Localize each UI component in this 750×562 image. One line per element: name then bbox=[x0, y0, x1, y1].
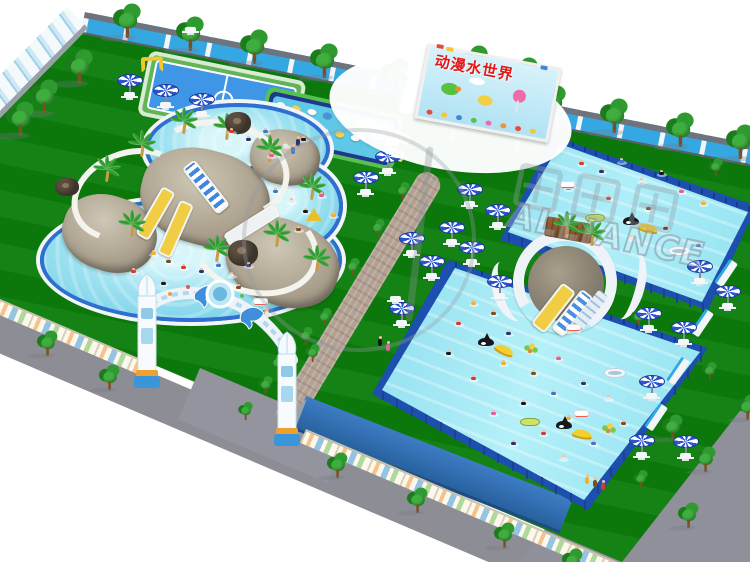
pool-frame-leg bbox=[483, 446, 485, 455]
canoe-float bbox=[520, 418, 540, 426]
pool-frame-leg bbox=[425, 415, 427, 424]
swimmer bbox=[245, 136, 253, 143]
pool-fence-post bbox=[572, 142, 574, 147]
swimmer bbox=[530, 370, 538, 377]
part bbox=[739, 148, 742, 160]
watermark-ring bbox=[242, 128, 476, 352]
part bbox=[46, 348, 49, 357]
tree bbox=[726, 125, 750, 160]
swimmer bbox=[262, 128, 270, 135]
flower-float bbox=[602, 423, 616, 433]
arch-pillar bbox=[274, 332, 300, 446]
palm-tree bbox=[95, 160, 121, 184]
swimmer bbox=[180, 264, 188, 271]
pool-fence-post bbox=[595, 151, 597, 156]
body bbox=[599, 170, 604, 173]
swimmer bbox=[520, 400, 528, 407]
swimmer bbox=[510, 440, 518, 447]
tree bbox=[37, 331, 59, 357]
body bbox=[659, 172, 664, 175]
soccer-goal bbox=[141, 56, 164, 73]
picnic-table bbox=[643, 325, 654, 331]
pool-fence-post bbox=[631, 164, 633, 169]
swimmer bbox=[605, 395, 613, 402]
umbrella-table-set bbox=[639, 375, 665, 403]
lounger-float bbox=[566, 324, 581, 332]
picnic-table bbox=[636, 452, 647, 458]
pool-fence-post bbox=[736, 202, 738, 207]
part bbox=[78, 73, 81, 85]
picnic-table bbox=[646, 393, 657, 399]
candy-art bbox=[456, 115, 463, 121]
arch-pillar bbox=[134, 274, 160, 388]
body bbox=[229, 130, 234, 133]
tree bbox=[6, 102, 36, 137]
picnic-table bbox=[160, 102, 171, 108]
pool-frame-leg bbox=[689, 298, 691, 307]
swimmer bbox=[700, 200, 708, 207]
part bbox=[715, 170, 717, 176]
pool-fence-post bbox=[584, 147, 586, 152]
body bbox=[521, 402, 526, 405]
pool-frame-leg bbox=[676, 294, 678, 303]
pool-frame-leg bbox=[411, 407, 413, 416]
pool-frame-leg bbox=[512, 462, 514, 471]
body bbox=[265, 311, 269, 318]
orca-float bbox=[478, 338, 494, 346]
swimmer bbox=[580, 380, 588, 387]
body bbox=[166, 260, 171, 263]
swimmer bbox=[505, 330, 513, 337]
inflatable-boat bbox=[604, 368, 626, 378]
picnic-table bbox=[124, 92, 135, 98]
tree bbox=[310, 44, 340, 79]
candy-art bbox=[426, 109, 433, 115]
part bbox=[709, 374, 711, 380]
swimmer bbox=[590, 440, 598, 447]
tree bbox=[407, 488, 429, 514]
body bbox=[151, 252, 156, 255]
pool-frame-leg bbox=[469, 438, 471, 447]
water-park-scene: 动漫水世界 ALLIANCE bbox=[0, 0, 750, 562]
body bbox=[551, 392, 556, 395]
swimmer bbox=[490, 410, 498, 417]
body bbox=[216, 264, 221, 267]
swimmer bbox=[490, 310, 498, 317]
gorilla-figure bbox=[55, 178, 79, 196]
palm-tree bbox=[130, 135, 156, 159]
part bbox=[323, 67, 326, 79]
pool-fence-post bbox=[689, 185, 691, 190]
pool-frame-leg bbox=[674, 386, 676, 395]
pool-frame-leg bbox=[650, 284, 652, 293]
pool-fence-post bbox=[481, 271, 483, 276]
pool-fence-post bbox=[713, 193, 715, 198]
orca-float bbox=[556, 421, 572, 429]
person-standing bbox=[593, 477, 598, 488]
picnic-table bbox=[678, 339, 689, 345]
body bbox=[471, 377, 476, 380]
picnic-table bbox=[680, 453, 691, 459]
swimmer bbox=[678, 188, 686, 195]
candy-art bbox=[529, 128, 536, 134]
swimmer bbox=[550, 390, 558, 397]
body bbox=[246, 138, 251, 141]
sign-flag bbox=[436, 44, 444, 49]
pool-frame-leg bbox=[555, 485, 557, 494]
lounger-float bbox=[574, 410, 589, 418]
pool-frame-leg bbox=[526, 470, 528, 479]
pool-frame-leg bbox=[663, 289, 665, 298]
body bbox=[511, 442, 516, 445]
body bbox=[269, 154, 274, 157]
tree bbox=[65, 50, 95, 85]
body bbox=[541, 432, 546, 435]
person-standing bbox=[601, 480, 606, 491]
umbrella-table-set bbox=[153, 84, 179, 112]
umbrella-table-set bbox=[636, 307, 662, 335]
swimmer bbox=[578, 160, 586, 167]
pool-fence-post bbox=[666, 176, 668, 181]
pool-frame-leg bbox=[687, 369, 689, 378]
swimmer bbox=[150, 250, 158, 257]
swimmer bbox=[658, 170, 666, 177]
umbrella-table-set bbox=[673, 435, 699, 463]
pool-frame-leg bbox=[396, 399, 398, 408]
swimmer bbox=[555, 355, 563, 362]
shrub bbox=[702, 362, 718, 380]
candy-art bbox=[515, 126, 522, 132]
part bbox=[640, 482, 642, 488]
part bbox=[19, 125, 22, 137]
pool-frame-leg bbox=[623, 452, 625, 461]
umbrella-table-set bbox=[189, 93, 215, 121]
swimmer bbox=[215, 262, 223, 269]
part bbox=[336, 470, 339, 479]
body bbox=[601, 483, 605, 490]
umbrella-table-set bbox=[487, 275, 513, 303]
tree bbox=[176, 17, 206, 52]
swimmer bbox=[228, 128, 236, 135]
tree bbox=[562, 549, 584, 562]
swimmer bbox=[470, 375, 478, 382]
swimmer bbox=[500, 360, 508, 367]
pool-frame-leg bbox=[700, 353, 702, 362]
part bbox=[746, 412, 749, 421]
pool-fence-post bbox=[725, 198, 727, 203]
pool-fence-post bbox=[701, 189, 703, 194]
body bbox=[263, 130, 268, 133]
tree bbox=[240, 30, 270, 65]
body bbox=[701, 202, 706, 205]
shrub bbox=[633, 470, 649, 488]
picnic-table bbox=[185, 27, 196, 33]
swimmer bbox=[445, 350, 453, 357]
body bbox=[181, 266, 186, 269]
pool-frame-leg bbox=[440, 422, 442, 431]
swimmer bbox=[618, 158, 626, 165]
umbrella-table-set bbox=[671, 321, 697, 349]
body bbox=[556, 357, 561, 360]
pool-frame-leg bbox=[541, 477, 543, 486]
body bbox=[456, 322, 461, 325]
body bbox=[606, 397, 611, 400]
picnic-table bbox=[492, 222, 503, 228]
body bbox=[591, 442, 596, 445]
body bbox=[619, 160, 624, 163]
part bbox=[43, 103, 46, 115]
part bbox=[687, 520, 690, 529]
part bbox=[679, 136, 682, 148]
body bbox=[446, 352, 451, 355]
tree bbox=[737, 395, 750, 421]
picnic-table bbox=[494, 293, 505, 299]
body bbox=[679, 190, 684, 193]
body bbox=[491, 312, 496, 315]
body bbox=[491, 412, 496, 415]
picnic-table bbox=[196, 111, 207, 117]
tree bbox=[600, 99, 630, 134]
body bbox=[581, 382, 586, 385]
body bbox=[585, 477, 589, 484]
part bbox=[704, 464, 707, 473]
pool-frame-leg bbox=[454, 430, 456, 439]
pool-frame-leg bbox=[584, 501, 586, 510]
part bbox=[566, 555, 580, 562]
umbrella-table-set bbox=[117, 74, 143, 102]
body bbox=[561, 457, 566, 460]
candy-art bbox=[470, 117, 477, 123]
swimmer bbox=[455, 320, 463, 327]
part bbox=[613, 122, 616, 134]
part bbox=[189, 40, 192, 52]
body bbox=[501, 362, 506, 365]
lollipop-art bbox=[512, 89, 527, 104]
swimmer bbox=[282, 142, 290, 149]
body bbox=[593, 480, 597, 487]
tree bbox=[666, 113, 696, 148]
body bbox=[621, 422, 626, 425]
body bbox=[506, 332, 511, 335]
sun-art bbox=[477, 94, 494, 107]
swimmer bbox=[165, 258, 173, 265]
umbrella-table-set bbox=[715, 285, 741, 313]
candy-art bbox=[500, 123, 507, 129]
part bbox=[503, 540, 506, 549]
swimmer bbox=[268, 152, 276, 159]
tree bbox=[678, 503, 700, 529]
pool-frame-leg bbox=[610, 468, 612, 477]
swimmer bbox=[470, 300, 478, 307]
pool-frame-leg bbox=[570, 493, 572, 502]
tree bbox=[327, 453, 349, 479]
body bbox=[531, 372, 536, 375]
swimmer bbox=[560, 455, 568, 462]
swimmer bbox=[540, 430, 548, 437]
pool-frame-leg bbox=[382, 391, 384, 400]
lounger-float bbox=[560, 181, 575, 189]
pool-fence-post bbox=[678, 181, 680, 186]
body bbox=[471, 302, 476, 305]
picnic-table bbox=[722, 303, 733, 309]
cartoon-duck-art bbox=[440, 81, 460, 96]
pool-fence-post bbox=[607, 155, 609, 160]
candy-art bbox=[441, 112, 448, 118]
picnic-table bbox=[694, 278, 705, 284]
candy-art bbox=[485, 120, 492, 126]
pool-frame-leg bbox=[497, 454, 499, 463]
part bbox=[126, 27, 129, 39]
shrub bbox=[708, 158, 724, 176]
person-standing bbox=[585, 474, 590, 485]
swimmer bbox=[620, 420, 628, 427]
pool-fence-post bbox=[654, 172, 656, 177]
pool-fence-post bbox=[642, 168, 644, 173]
swimmer bbox=[598, 168, 606, 175]
part bbox=[416, 505, 419, 514]
umbrella-table-set bbox=[629, 434, 655, 462]
part bbox=[253, 53, 256, 65]
tree bbox=[494, 523, 516, 549]
tree bbox=[113, 4, 143, 39]
body bbox=[283, 144, 288, 147]
body bbox=[579, 162, 584, 165]
flower-float bbox=[524, 343, 538, 353]
pool-fence-post bbox=[700, 346, 702, 351]
palm-tree bbox=[120, 215, 146, 239]
